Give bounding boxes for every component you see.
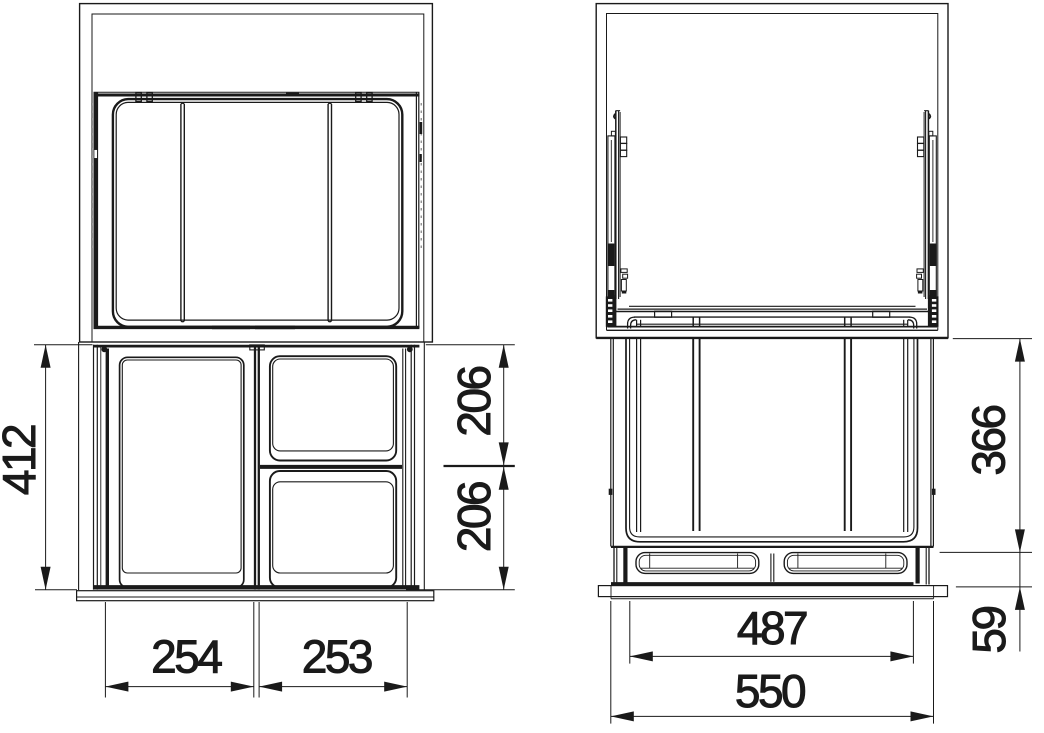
svg-text:206: 206 bbox=[448, 482, 500, 552]
svg-text:550: 550 bbox=[735, 665, 805, 717]
svg-text:487: 487 bbox=[737, 602, 807, 654]
svg-text:253: 253 bbox=[302, 630, 372, 682]
svg-text:412: 412 bbox=[0, 425, 45, 495]
svg-text:254: 254 bbox=[151, 630, 222, 682]
svg-text:366: 366 bbox=[963, 405, 1015, 475]
svg-text:206: 206 bbox=[448, 366, 500, 436]
svg-text:59: 59 bbox=[963, 607, 1015, 654]
